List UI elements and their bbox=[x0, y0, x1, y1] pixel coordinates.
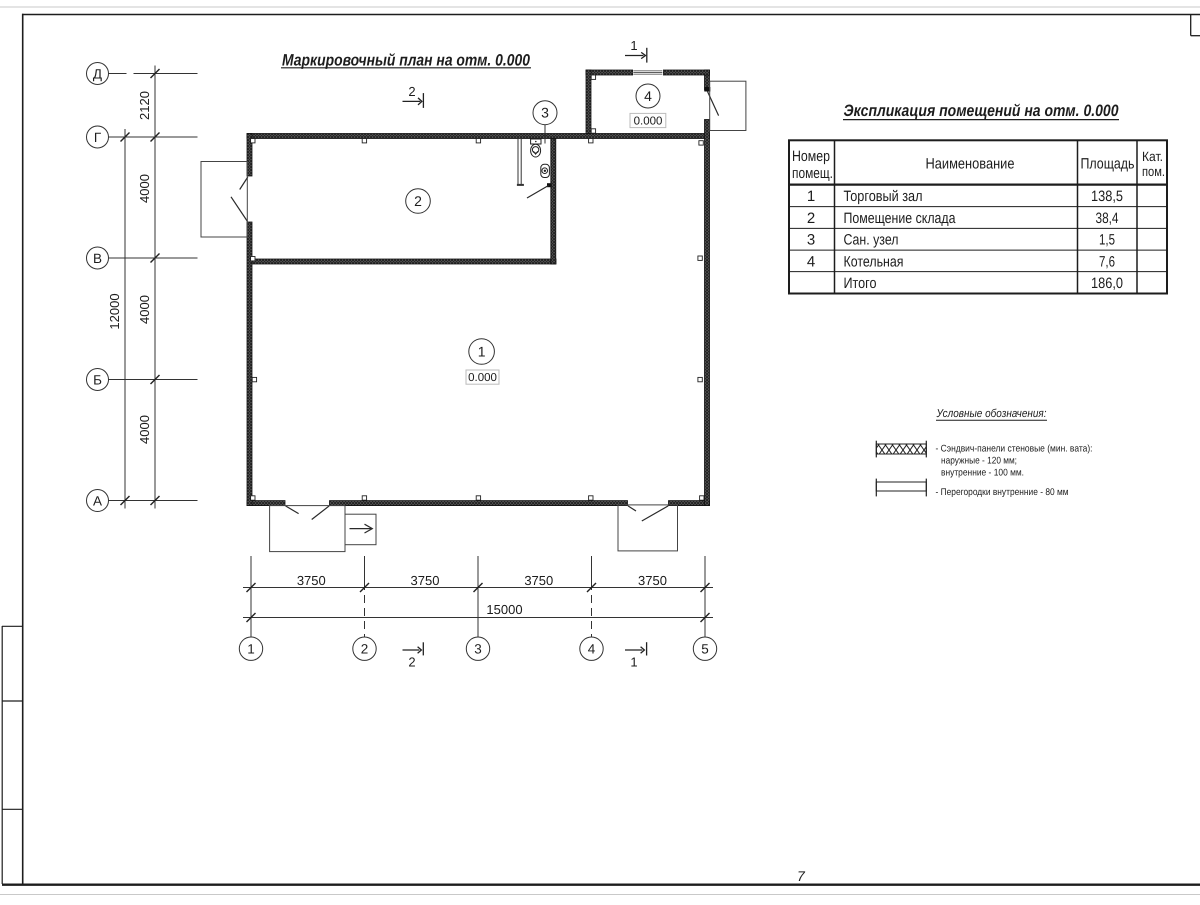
svg-text:наружные - 120 мм;: наружные - 120 мм; bbox=[941, 456, 1017, 467]
svg-text:Д: Д bbox=[93, 67, 102, 82]
svg-text:Г: Г bbox=[94, 130, 102, 145]
svg-text:Котельная: Котельная bbox=[844, 254, 904, 271]
svg-text:помещ.: помещ. bbox=[792, 165, 833, 182]
svg-text:138,5: 138,5 bbox=[1091, 188, 1123, 205]
svg-text:3: 3 bbox=[807, 232, 815, 249]
svg-text:2: 2 bbox=[414, 193, 422, 209]
svg-text:Наименование: Наименование bbox=[926, 156, 1015, 173]
svg-text:15000: 15000 bbox=[486, 602, 522, 617]
svg-text:Номер: Номер bbox=[792, 148, 830, 165]
svg-text:2: 2 bbox=[408, 84, 415, 99]
svg-text:1: 1 bbox=[630, 38, 637, 53]
svg-text:Торговый зал: Торговый зал bbox=[844, 188, 923, 205]
svg-text:А: А bbox=[93, 494, 102, 509]
svg-text:7: 7 bbox=[797, 868, 806, 884]
svg-text:4000: 4000 bbox=[137, 295, 152, 324]
svg-text:186,0: 186,0 bbox=[1091, 275, 1123, 292]
svg-text:12000: 12000 bbox=[107, 293, 122, 329]
svg-text:В: В bbox=[93, 251, 102, 266]
svg-text:4000: 4000 bbox=[137, 174, 152, 203]
svg-text:2: 2 bbox=[408, 655, 415, 670]
svg-text:1: 1 bbox=[247, 642, 255, 657]
svg-text:пом.: пом. bbox=[1142, 164, 1165, 179]
svg-text:Экспликация помещений на отм.: Экспликация помещений на отм. 0.000 bbox=[844, 102, 1120, 120]
svg-text:Площадь: Площадь bbox=[1081, 156, 1135, 173]
svg-text:4: 4 bbox=[807, 254, 815, 271]
svg-text:1: 1 bbox=[478, 344, 486, 360]
svg-text:3: 3 bbox=[541, 105, 549, 121]
svg-text:Помещение склада: Помещение склада bbox=[844, 210, 957, 227]
svg-text:5: 5 bbox=[701, 642, 709, 657]
svg-text:1: 1 bbox=[630, 655, 637, 670]
svg-text:3: 3 bbox=[474, 642, 482, 657]
svg-text:Кат.: Кат. bbox=[1142, 149, 1163, 164]
svg-text:0.000: 0.000 bbox=[634, 115, 663, 127]
svg-text:внутренние - 100 мм.: внутренние - 100 мм. bbox=[941, 468, 1024, 479]
svg-text:- Сэндвич-панели стеновые (мин: - Сэндвич-панели стеновые (мин. вата): bbox=[936, 444, 1093, 455]
svg-text:Сан. узел: Сан. узел bbox=[844, 232, 899, 249]
svg-text:2: 2 bbox=[807, 210, 815, 227]
svg-text:4: 4 bbox=[644, 88, 652, 104]
svg-text:Итого: Итого bbox=[844, 275, 877, 292]
svg-text:1,5: 1,5 bbox=[1099, 232, 1115, 249]
svg-text:3750: 3750 bbox=[411, 573, 440, 588]
svg-text:4000: 4000 bbox=[137, 415, 152, 444]
svg-text:4: 4 bbox=[588, 642, 596, 657]
svg-text:Условные обозначения:: Условные обозначения: bbox=[936, 408, 1047, 420]
svg-text:2120: 2120 bbox=[137, 91, 152, 120]
svg-text:Б: Б bbox=[93, 373, 102, 388]
svg-text:2: 2 bbox=[361, 642, 369, 657]
svg-text:- Перегородки внутренние - 80: - Перегородки внутренние - 80 мм bbox=[936, 487, 1069, 498]
svg-text:0.000: 0.000 bbox=[468, 372, 497, 384]
svg-text:38,4: 38,4 bbox=[1096, 210, 1119, 227]
svg-text:3750: 3750 bbox=[524, 573, 553, 588]
svg-text:3750: 3750 bbox=[638, 573, 667, 588]
svg-text:3750: 3750 bbox=[297, 573, 326, 588]
svg-text:Маркировочный план на отм. 0.0: Маркировочный план на отм. 0.000 bbox=[282, 51, 531, 69]
svg-text:7,6: 7,6 bbox=[1099, 254, 1115, 271]
svg-text:1: 1 bbox=[807, 188, 815, 205]
